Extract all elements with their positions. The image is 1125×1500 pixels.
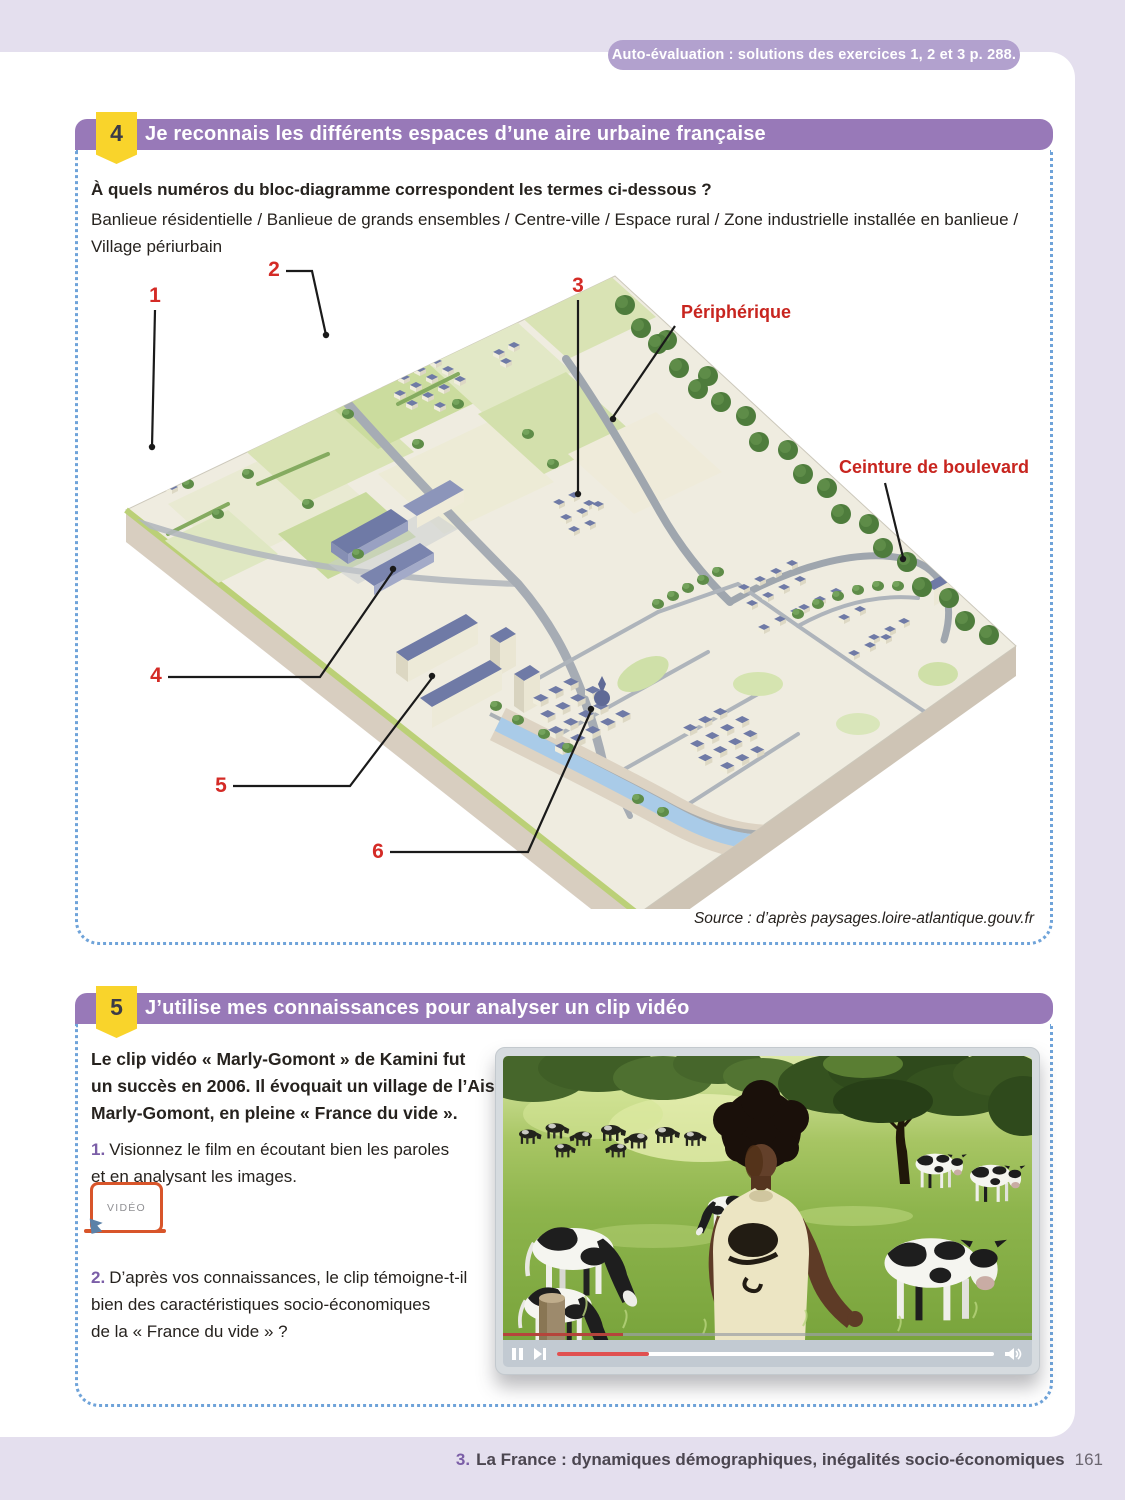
video-player[interactable] [495, 1047, 1040, 1375]
exercise-5-body: Le clip vidéo « Marly-Gomont » de Kamini… [75, 1024, 1053, 1407]
block-diagram-illustration: 1 2 3 4 5 6 Périphérique Ceinture de bou… [98, 254, 1028, 909]
volume-icon[interactable] [1004, 1347, 1024, 1361]
exercise-4-number: 4 [110, 120, 123, 147]
page-footer: 3.La France : dynamiques démographiques,… [0, 1437, 1125, 1500]
footer-text: 3.La France : dynamiques démographiques,… [456, 1450, 1103, 1470]
exercise-5-number: 5 [110, 994, 123, 1021]
question-2: 2.D’après vos connaissances, le clip tém… [91, 1264, 467, 1345]
exercise-5-number-badge: 5 [96, 986, 137, 1038]
intro-line: Le clip vidéo « Marly-Gomont » de Kamini… [91, 1046, 520, 1073]
intro-line: un succès en 2006. Il évoquait un villag… [91, 1073, 520, 1100]
auto-evaluation-banner: Auto-évaluation : solutions des exercice… [608, 40, 1020, 70]
exercise-5: 5 J’utilise mes connaissances pour analy… [75, 993, 1053, 1407]
progress-bar[interactable] [557, 1352, 994, 1356]
exercise-5-header-bar: 5 J’utilise mes connaissances pour analy… [75, 993, 1053, 1024]
question-2-number: 2. [91, 1268, 105, 1287]
page-number: 161 [1075, 1450, 1103, 1469]
exercise-4-title: Je reconnais les différents espaces d’un… [145, 119, 766, 150]
textbook-page: Auto-évaluation : solutions des exercice… [0, 0, 1125, 1500]
chapter-title: La France : dynamiques démographiques, i… [476, 1450, 1065, 1469]
exercise-4-header-bar: 4 Je reconnais les différents espaces d’… [75, 119, 1053, 150]
diagram-label-1: 1 [149, 284, 161, 307]
exercise-4-terms: Banlieue résidentielle / Banlieue de gra… [91, 206, 1041, 260]
exercise-5-title: J’utilise mes connaissances pour analyse… [145, 993, 690, 1024]
banner-text: Auto-évaluation : solutions des exercice… [612, 47, 1016, 63]
village-cluster [134, 432, 184, 496]
cursor-icon [86, 1208, 112, 1234]
diagram-label-5: 5 [215, 774, 227, 797]
question-1-line: Visionnez le film en écoutant bien les p… [109, 1140, 449, 1159]
diagram-label-ceinture: Ceinture de boulevards [839, 457, 1028, 477]
exercise-4-question: À quels numéros du bloc-diagramme corres… [91, 180, 712, 200]
progress-fill [557, 1352, 649, 1356]
pause-icon[interactable] [511, 1347, 527, 1361]
exercise-4: 4 Je reconnais les différents espaces d’… [75, 119, 1053, 945]
inline-progress-line [503, 1333, 1032, 1336]
video-link-label: VIDÉO [107, 1202, 146, 1214]
chapter-number: 3. [456, 1450, 470, 1469]
video-screen[interactable] [503, 1056, 1032, 1340]
diagram-label-4: 4 [150, 664, 162, 687]
video-still-frame [503, 1056, 1032, 1340]
exercise-5-intro: Le clip vidéo « Marly-Gomont » de Kamini… [91, 1046, 520, 1127]
question-2-line: bien des caractéristiques socio-économiq… [91, 1291, 467, 1318]
question-1-number: 1. [91, 1140, 105, 1159]
next-frame-icon[interactable] [533, 1347, 547, 1361]
diagram-label-3: 3 [572, 274, 584, 297]
video-controls [503, 1340, 1032, 1367]
diagram-label-6: 6 [372, 840, 384, 863]
exercise-4-body: À quels numéros du bloc-diagramme corres… [75, 150, 1053, 945]
question-2-line: D’après vos connaissances, le clip témoi… [109, 1268, 467, 1287]
diagram-source: Source : d’après paysages.loire-atlantiq… [694, 910, 1034, 928]
intro-line: Marly-Gomont, en pleine « France du vide… [91, 1100, 520, 1127]
wooden-post [539, 1293, 565, 1340]
question-2-line: de la « France du vide » ? [91, 1318, 467, 1345]
diagram-label-2: 2 [268, 258, 280, 281]
block-diagram: 1 2 3 4 5 6 Périphérique Ceinture de bou… [98, 254, 1028, 909]
exercise-4-number-badge: 4 [96, 112, 137, 164]
diagram-label-peripherique: Périphérique [681, 302, 791, 322]
